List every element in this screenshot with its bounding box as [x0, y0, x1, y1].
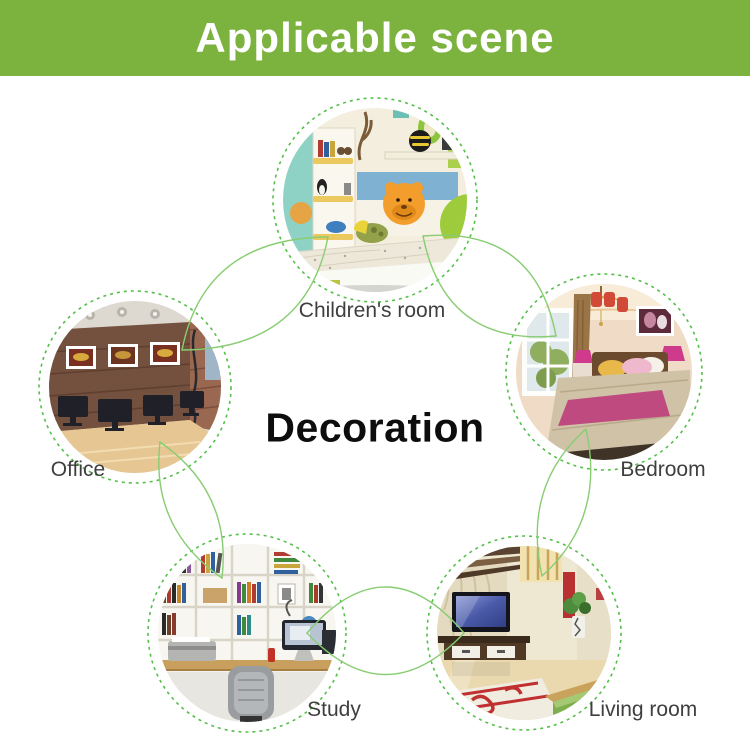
tv [452, 592, 510, 632]
center-title: Decoration [265, 405, 484, 452]
scene-diagram [0, 0, 750, 750]
wall-frames [66, 342, 180, 369]
label-children-room: Children's room [299, 299, 445, 323]
photo-children-room [283, 108, 500, 297]
photo-bedroom [516, 284, 692, 462]
label-bedroom: Bedroom [620, 458, 705, 482]
label-living-room: Living room [589, 698, 698, 722]
tv-cabinet [438, 636, 530, 660]
printer [168, 637, 216, 661]
label-study: Study [307, 698, 361, 722]
office-chair [228, 666, 274, 722]
photo-study [158, 544, 336, 722]
label-office: Office [51, 458, 105, 482]
bee-plush [409, 130, 431, 152]
photo-office [49, 301, 221, 473]
